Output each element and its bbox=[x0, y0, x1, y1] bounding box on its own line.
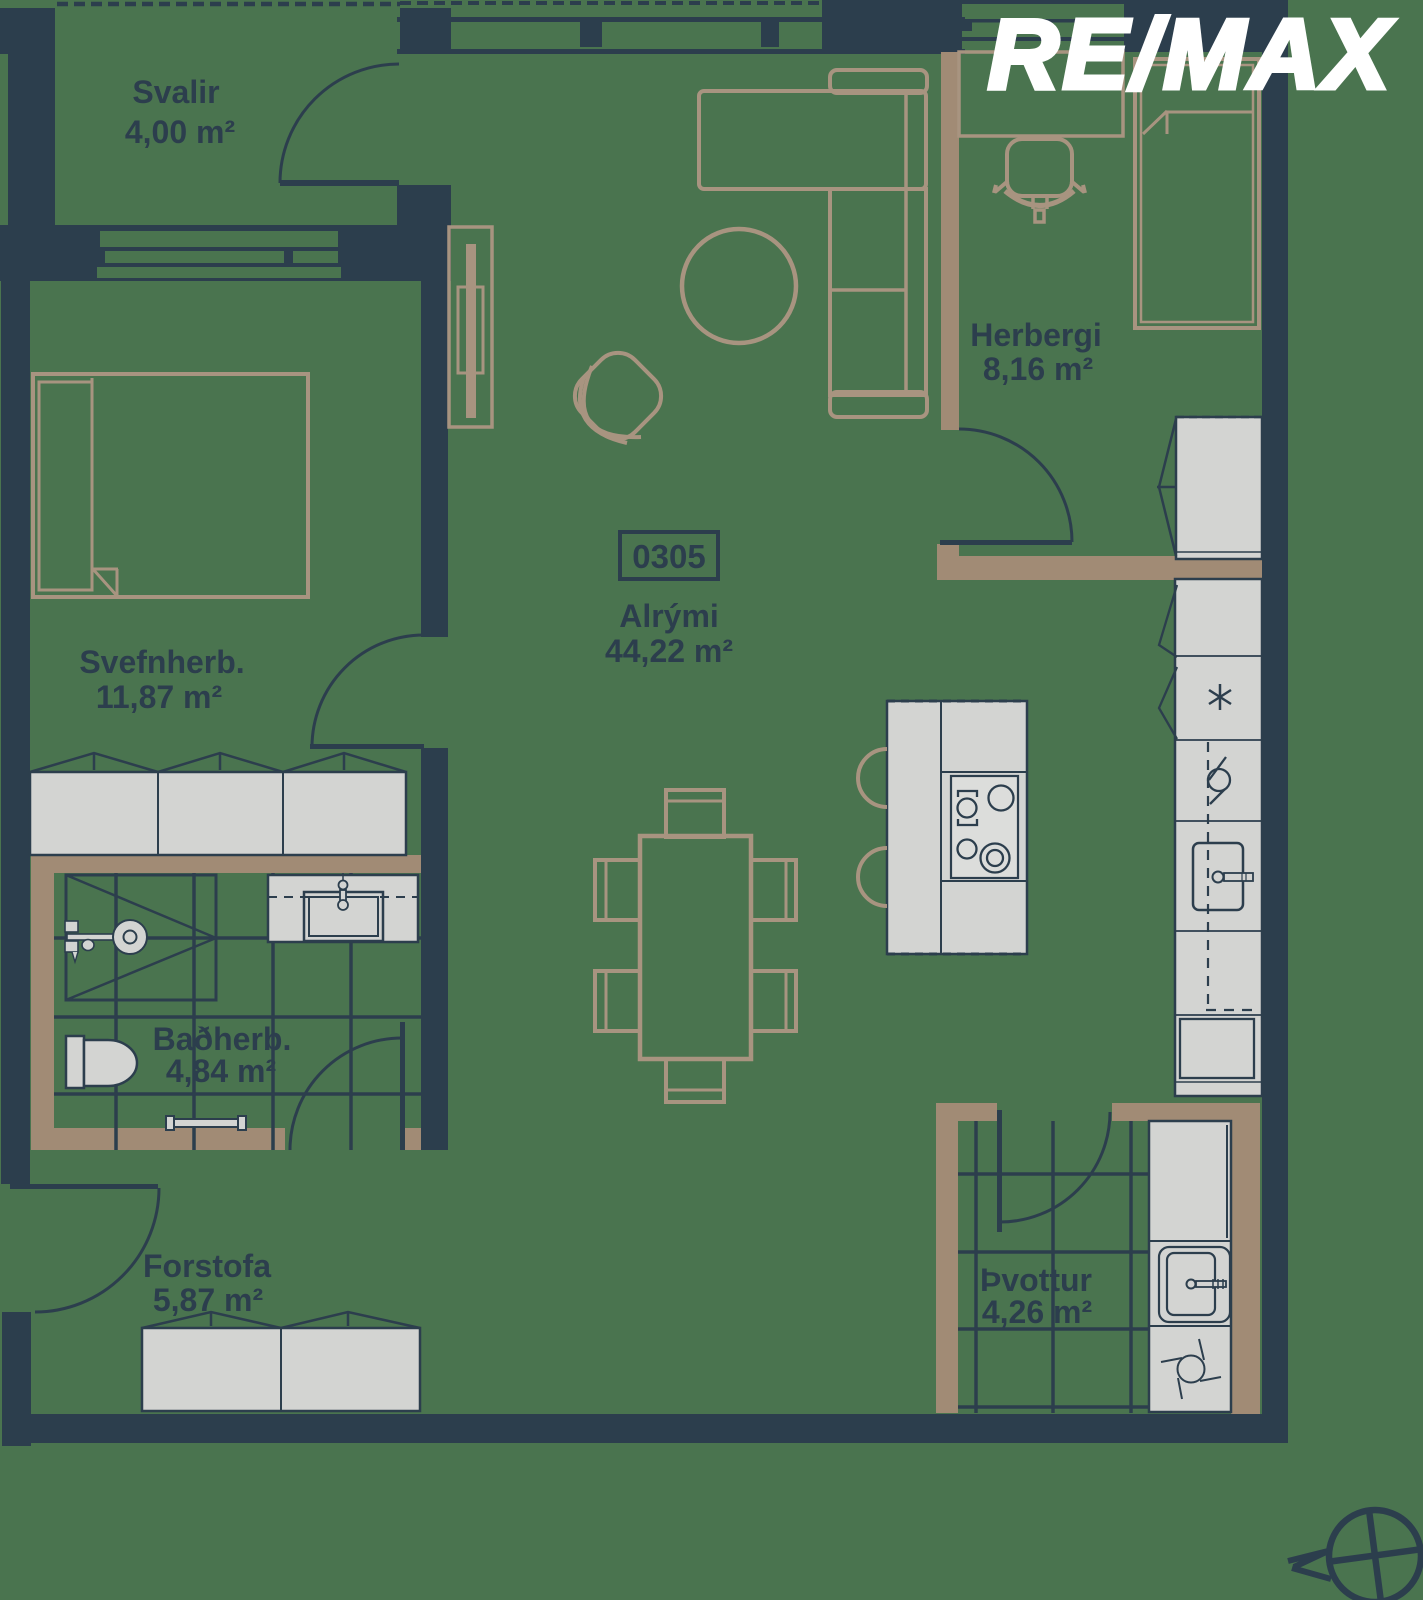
svg-text:5,87 m²: 5,87 m² bbox=[153, 1282, 263, 1318]
svg-text:44,22 m²: 44,22 m² bbox=[605, 633, 733, 669]
svg-text:Forstofa: Forstofa bbox=[143, 1248, 271, 1284]
svg-text:Herbergi: Herbergi bbox=[970, 317, 1102, 353]
svg-text:Svefnherb.: Svefnherb. bbox=[79, 644, 244, 680]
svg-text:RE/MAX: RE/MAX bbox=[988, 0, 1395, 109]
svg-text:4,00 m²: 4,00 m² bbox=[125, 114, 235, 150]
svg-text:11,87 m²: 11,87 m² bbox=[96, 679, 222, 715]
svg-text:Svalir: Svalir bbox=[132, 74, 219, 110]
svg-text:Þvottur: Þvottur bbox=[980, 1262, 1092, 1298]
svg-text:4,84 m²: 4,84 m² bbox=[166, 1053, 276, 1089]
svg-text:Baðherb.: Baðherb. bbox=[153, 1021, 292, 1057]
svg-text:8,16 m²: 8,16 m² bbox=[983, 351, 1093, 387]
svg-text:Alrými: Alrými bbox=[619, 598, 719, 634]
svg-text:4,26 m²: 4,26 m² bbox=[982, 1294, 1092, 1330]
svg-text:0305: 0305 bbox=[632, 538, 705, 575]
